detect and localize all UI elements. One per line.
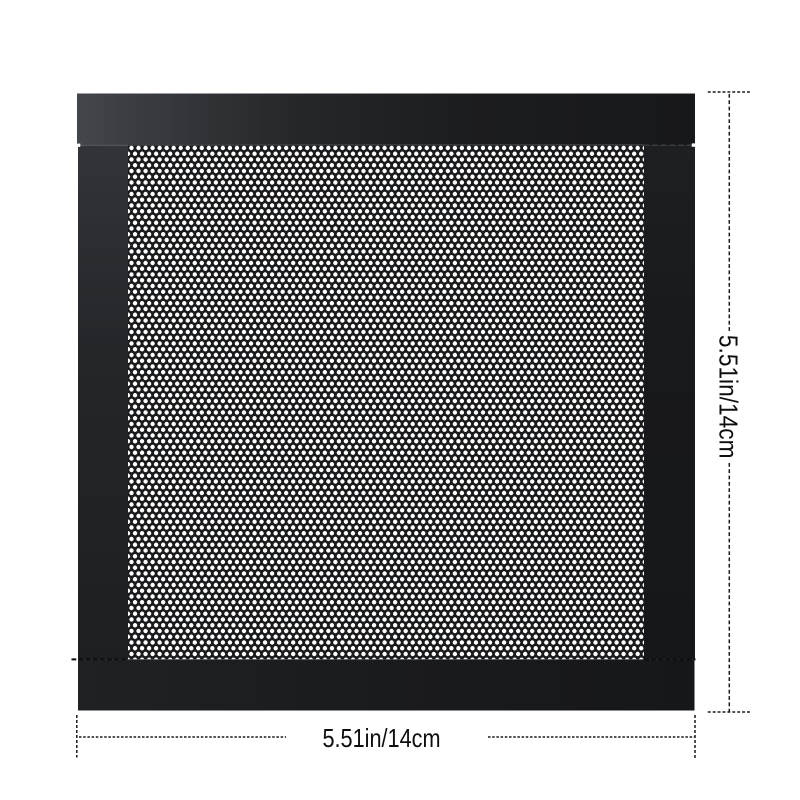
svg-text:5.51in/14cm: 5.51in/14cm [322,725,440,753]
svg-text:5.51in/14cm: 5.51in/14cm [713,335,742,459]
